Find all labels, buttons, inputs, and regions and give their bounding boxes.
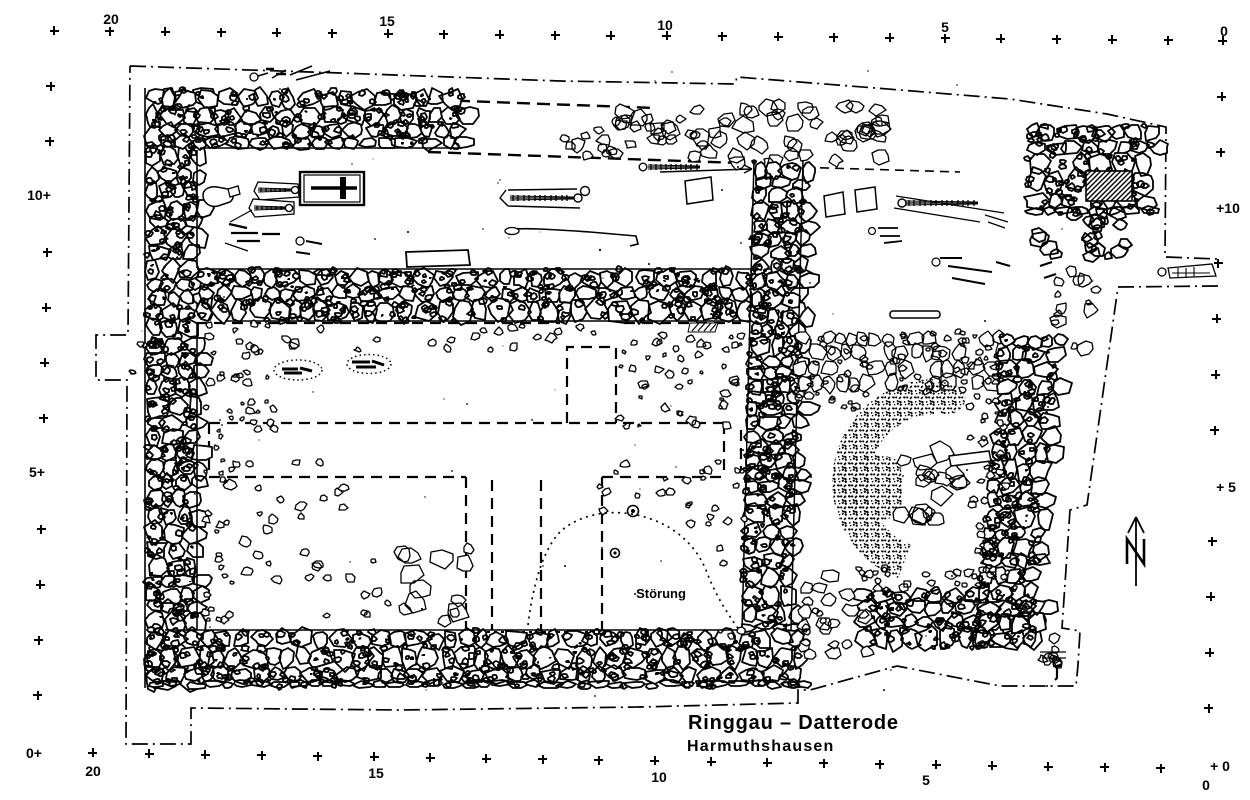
svg-text:10+: 10+ (27, 187, 51, 203)
svg-text:Ringgau – Datterode: Ringgau – Datterode (688, 712, 899, 734)
svg-text:0+: 0+ (26, 745, 42, 761)
svg-text:5: 5 (941, 19, 949, 35)
svg-text:5+: 5+ (29, 464, 45, 480)
svg-text:20: 20 (85, 763, 101, 779)
svg-text:10: 10 (657, 17, 673, 33)
svg-text:5: 5 (922, 772, 930, 788)
svg-text:0: 0 (1202, 777, 1210, 793)
svg-text:15: 15 (368, 765, 384, 781)
svg-text:+10: +10 (1216, 200, 1240, 216)
svg-text:+ 5: + 5 (1216, 479, 1236, 495)
svg-text:15: 15 (379, 13, 395, 29)
svg-text:0: 0 (1220, 23, 1228, 39)
svg-text:20: 20 (103, 11, 119, 27)
svg-text:+ 0: + 0 (1210, 758, 1230, 774)
svg-text:10: 10 (651, 769, 667, 785)
svg-text:Störung: Störung (636, 586, 686, 601)
svg-text:Harmuthshausen: Harmuthshausen (687, 738, 835, 755)
